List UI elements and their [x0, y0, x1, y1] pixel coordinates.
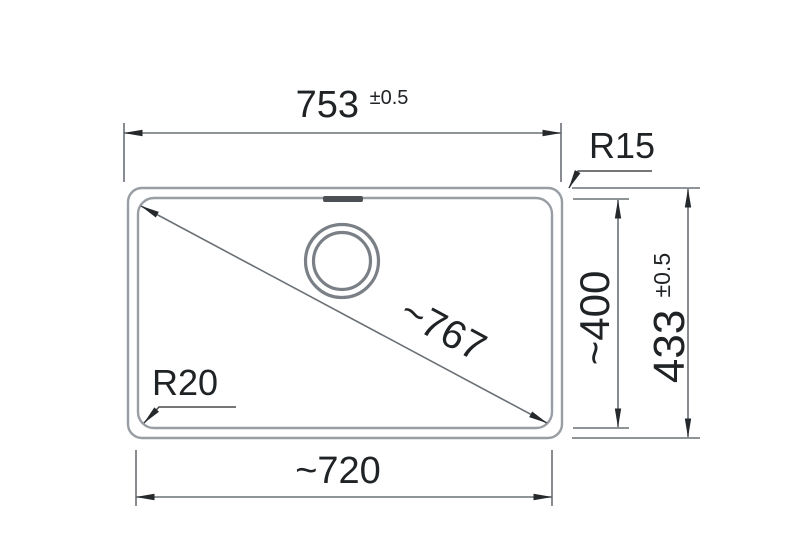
dimension-inner-height: ~400 [571, 199, 629, 428]
diagonal-label: ~767 [393, 289, 493, 370]
outer-height-value: 433 [645, 310, 694, 383]
sink-dimension-diagram: 753 ±0.5 R15 ~767 R20 ~400 [0, 0, 800, 544]
callout-radius-top-right: R15 [569, 125, 655, 188]
drain-hole [306, 225, 379, 298]
top-width-label: 753 ±0.5 [296, 84, 409, 126]
technical-drawing-canvas: 753 ±0.5 R15 ~767 R20 ~400 [0, 0, 800, 544]
drain-hole-inner-ring [314, 233, 371, 290]
overflow-slot [323, 196, 363, 202]
top-width-tolerance: ±0.5 [370, 87, 409, 109]
outer-height-tolerance: ±0.5 [649, 253, 675, 298]
outer-height-label: 433 ±0.5 [645, 253, 694, 383]
leader-line-r15 [569, 171, 652, 188]
drain-hole-outer-ring [306, 225, 379, 298]
callout-radius-bottom-left: R20 [144, 362, 236, 423]
radius-bottom-left-label: R20 [152, 362, 218, 403]
inner-width-label: ~720 [295, 450, 381, 492]
leader-line-r20 [144, 407, 236, 423]
dimension-inner-width: ~720 [136, 450, 552, 506]
radius-top-right-label: R15 [589, 125, 655, 166]
top-width-value: 753 [296, 84, 359, 126]
dimension-top-width: 753 ±0.5 [124, 84, 561, 182]
inner-height-label: ~400 [571, 271, 618, 366]
